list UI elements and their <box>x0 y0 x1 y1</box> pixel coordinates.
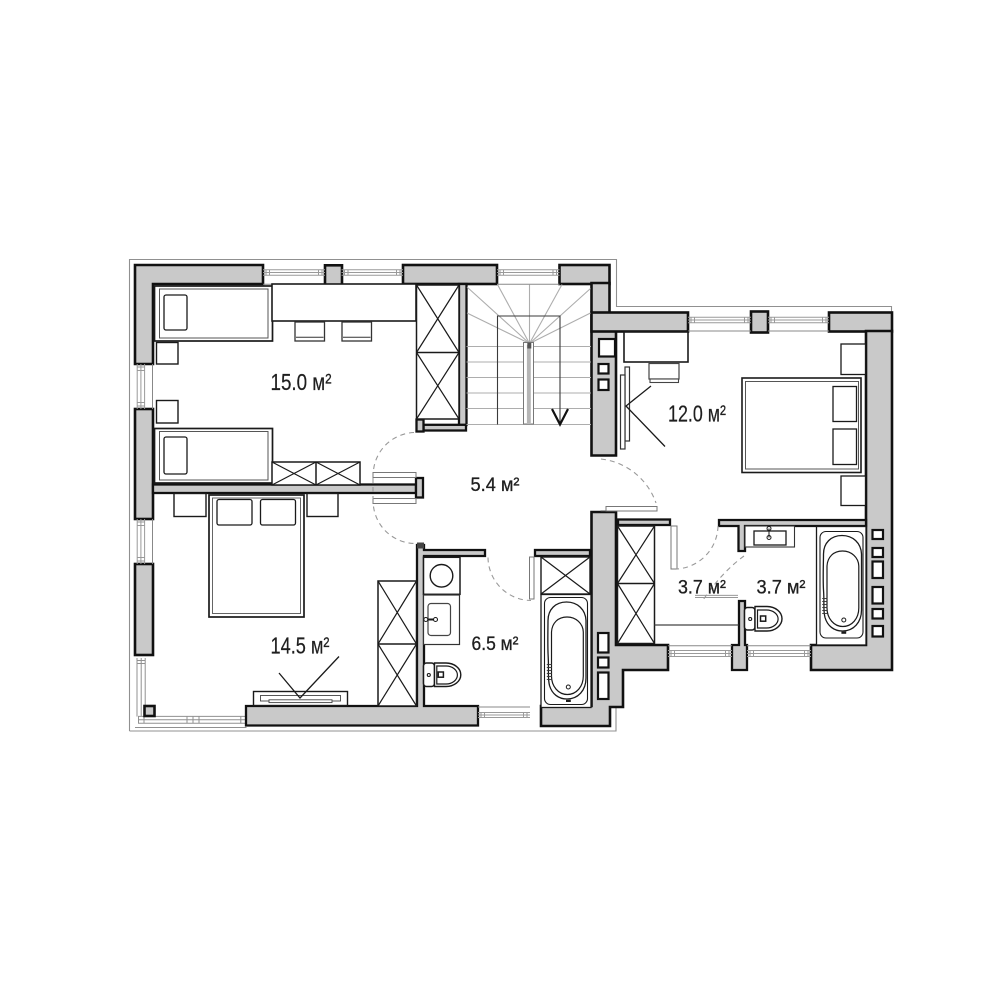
svg-text:6.5 м²: 6.5 м² <box>472 633 519 655</box>
svg-text:14.5 м²: 14.5 м² <box>271 633 330 659</box>
svg-text:5.4 м²: 5.4 м² <box>471 474 520 496</box>
svg-text:12.0 м²: 12.0 м² <box>668 401 726 427</box>
svg-text:15.0 м²: 15.0 м² <box>271 369 332 395</box>
svg-text:3.7 м²: 3.7 м² <box>757 577 806 599</box>
svg-text:3.7 м²: 3.7 м² <box>678 577 726 599</box>
